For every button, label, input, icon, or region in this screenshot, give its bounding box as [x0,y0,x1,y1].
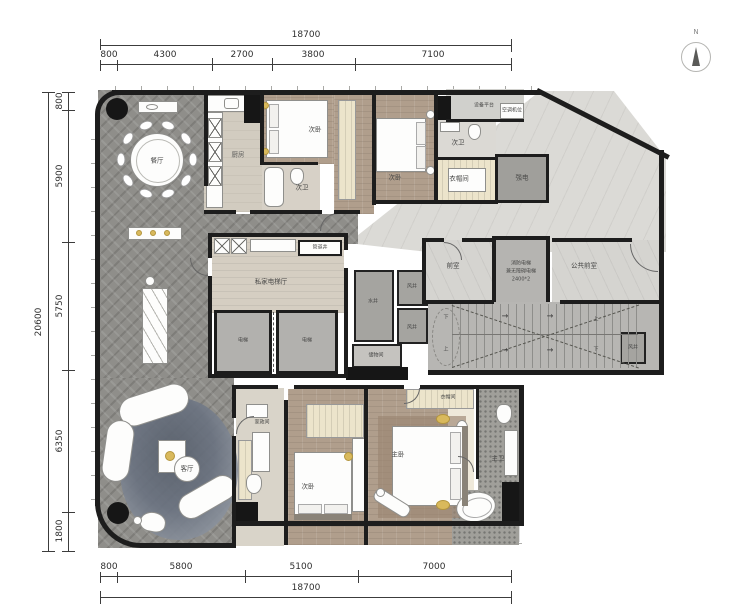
dining-chair [117,153,126,167]
label-dining: 餐厅 [151,157,164,164]
wardrobe [306,404,364,438]
stair-arrow: → [547,346,554,355]
shower-unit [502,482,519,524]
label-bed-c: 次卧 [302,483,315,490]
label-lift-hall: 私家电梯厅 [255,278,288,285]
dim-seg: 2700 [229,50,256,60]
wall [372,95,376,205]
appliance [208,142,222,162]
label-fire-lift: 兼无障碍电梯 [506,269,536,275]
dim-tick [62,370,75,371]
label-front-room: 前室 [447,262,460,269]
wall [434,200,498,204]
wall [204,90,208,186]
decor-dot [165,451,175,461]
appliance [208,166,222,186]
dim-seg: 4300 [152,50,179,60]
dim-tick [62,512,75,513]
wall [95,116,100,506]
elevator-divider [273,312,275,372]
round-mirror [145,276,155,286]
north-arrow-icon: N [678,28,714,80]
dim-tick [62,242,75,243]
wall [344,233,348,250]
stair-up-label: 上 [443,347,448,353]
wall [346,367,408,380]
wall [334,210,360,214]
label-bath-a: 次卫 [296,184,309,191]
dim-left-total: 20600 [34,308,44,337]
wall [250,210,322,214]
label-equip-platform: 设备平台 [474,103,494,109]
toilet [496,404,512,424]
dim-seg: 800 [98,562,119,572]
dim-top-total: 18700 [290,30,323,40]
dim-seg: 800 [98,50,119,60]
stair-down-label: 下 [593,347,598,353]
wall [476,389,479,479]
dim-seg: 1800 [55,520,65,543]
wardrobe [338,100,356,200]
toilet [468,124,481,140]
counter [252,432,270,472]
bed-pillow [416,146,426,169]
label-pipe-shaft: 管道井 [312,245,327,251]
wall [364,385,404,389]
stair-arrow: → [502,346,509,355]
wall [294,385,364,389]
label-wind-shaft: 风井 [407,284,417,290]
wall [659,150,664,375]
label-living: 客厅 [181,465,194,472]
console-table [138,101,178,113]
wall [552,238,632,242]
label-fire-lift: 2400*2 [512,277,530,283]
bed-pillow [269,130,279,154]
dim-tick [355,58,356,71]
label-lift: 电梯 [238,338,248,344]
wall [364,389,368,545]
label-power: 强电 [516,174,529,181]
label-kitchen: 厨房 [232,151,245,158]
wall [434,93,438,203]
dim-seg: 5100 [288,562,315,572]
dim-seg: 5800 [168,562,195,572]
round-cushion [436,414,450,424]
water-shaft-floor [354,270,394,342]
wall [208,374,348,378]
wall [284,400,288,545]
label-master: 主卧 [392,451,405,458]
north-label: N [693,28,698,36]
dim-tick [100,591,101,604]
bed-pillow [416,122,426,145]
stool [344,452,353,461]
sink [440,122,460,132]
round-cushion [436,500,450,510]
headboard [294,514,352,520]
dim-tick [245,570,246,583]
label-ac-unit: 空调机位 [502,108,522,114]
dim-tick [511,39,512,52]
wall [208,276,212,378]
dim-tick [62,551,75,552]
dim-tick [511,58,512,71]
wall [260,162,318,165]
hall-cabinet [231,238,247,254]
wall [232,388,236,418]
dim-seg: 3800 [300,50,327,60]
vanity-counter [504,430,518,476]
compass-needle [692,47,700,66]
stair-up-label: 上 [593,317,598,323]
floor-plan: 18700 800 4300 2700 3800 7100 20600 800 … [0,0,753,612]
dim-line [68,92,69,552]
wall [140,543,236,548]
wall [424,300,494,304]
dim-seg: 5750 [55,295,65,318]
bed-pillow [324,504,348,514]
dining-chair [189,153,198,167]
wall [260,90,264,164]
bed-pillow [298,504,322,514]
label-bed-b: 次卧 [389,174,402,181]
appliance [208,118,222,138]
wall [232,521,524,526]
dim-line [48,92,49,552]
label-bath-b: 次卫 [452,139,465,146]
wall [420,385,520,389]
hall-cabinet [214,238,230,254]
label-water-shaft: 水井 [368,299,378,305]
dim-tick [511,591,512,604]
label-bath-m: 主卫 [492,455,505,462]
wall [426,238,444,242]
decor-dot [136,230,142,236]
label-closet-m: 衣帽间 [440,395,455,401]
stair-down-label: 下 [443,315,448,321]
art-panel [142,288,168,364]
dim-seg: 7000 [421,562,448,572]
wall [462,238,492,242]
wall [519,385,524,525]
stool [376,488,385,497]
label-lift: 电梯 [302,338,312,344]
hall-console [250,239,296,252]
dim-line [100,45,512,46]
bed-pillow [269,104,279,128]
wall [112,90,542,95]
label-housekeeping: 家政间 [254,420,269,426]
label-wind-shaft: 风井 [628,345,638,351]
kitchen-sink [224,98,239,109]
wall [428,370,664,375]
dim-seg: 5900 [55,165,65,188]
console-decor [146,104,158,110]
dim-tick [511,570,512,583]
dim-seg: 7100 [420,50,447,60]
wall [436,157,496,160]
decor-dot [150,230,156,236]
dim-tick [42,92,55,93]
stair-arrow: → [502,312,509,321]
wall [560,300,660,304]
wall [204,210,236,214]
bed-pillow [450,468,461,500]
label-fire-lift: 消防电梯 [511,261,531,267]
dim-bottom-total: 18700 [290,583,323,593]
dim-tick [272,58,273,71]
dim-line [100,576,512,577]
label-public-front: 公共前室 [571,262,597,269]
bathtub [264,167,284,207]
toilet [246,474,262,494]
wall [422,238,426,304]
stair-arrow: → [547,312,554,321]
wall [232,385,278,389]
dim-tick [358,570,359,583]
dim-tick [42,551,55,552]
label-closet-b: 衣帽间 [449,175,469,182]
dim-seg: 800 [55,92,65,109]
label-bed-a: 次卧 [309,126,322,133]
label-storage: 储物间 [368,353,383,359]
wall [232,436,236,544]
dim-seg: 6350 [55,430,65,453]
wall [446,119,524,122]
decor-dot [164,230,170,236]
label-wind-shaft: 风井 [407,325,417,331]
dim-line [100,597,512,598]
wall [208,233,212,258]
dim-tick [62,110,75,111]
dim-line [100,64,512,65]
wall [208,233,348,237]
wall [344,268,348,378]
dim-tick [212,58,213,71]
